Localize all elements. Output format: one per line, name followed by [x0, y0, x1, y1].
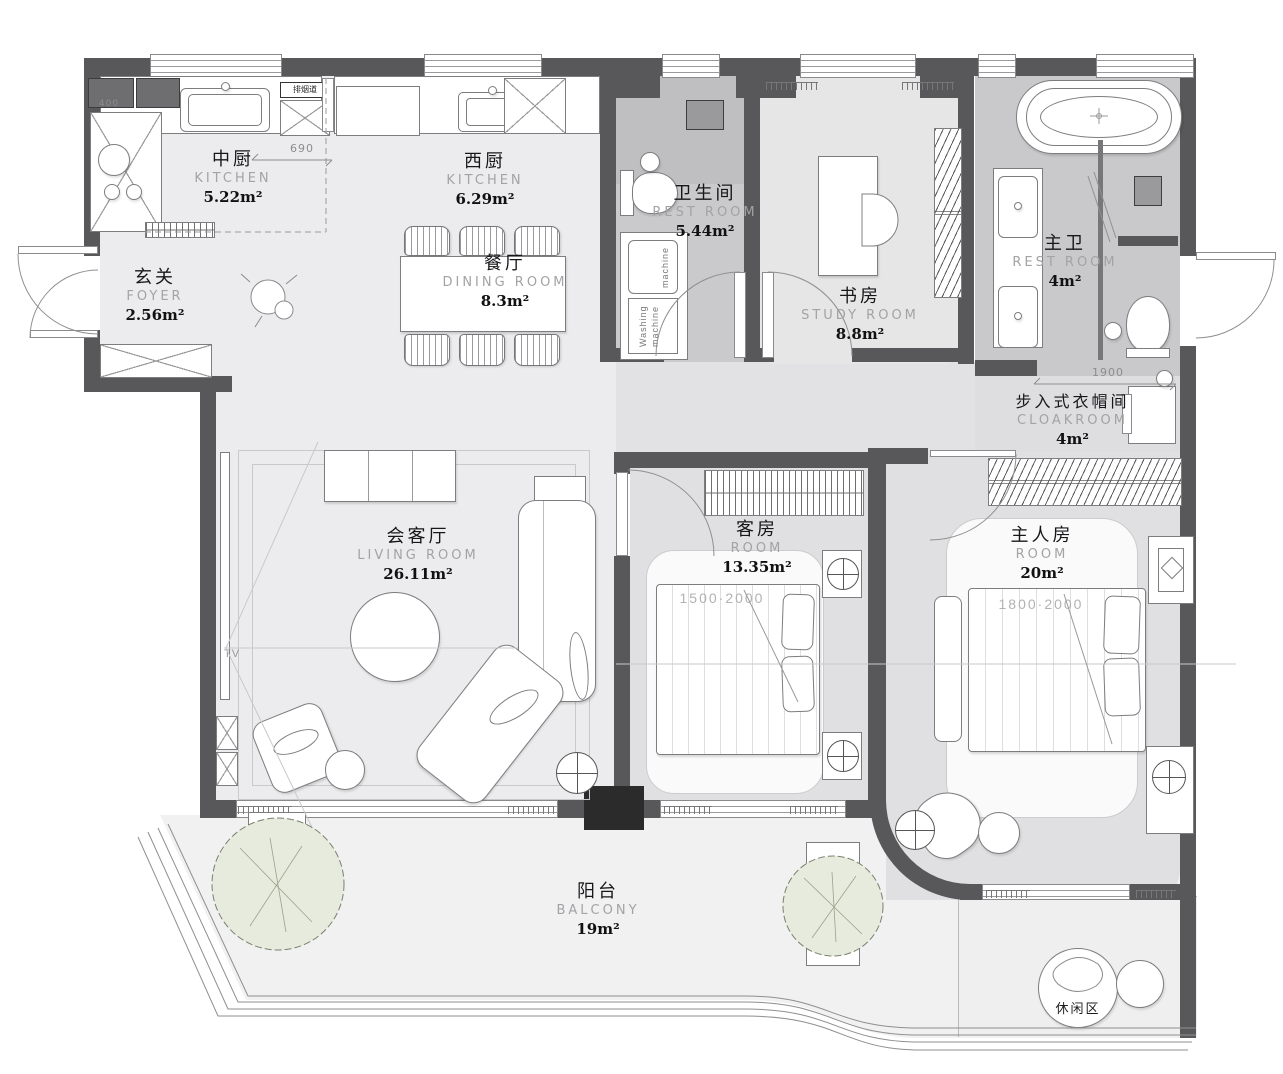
restroom-door-arc	[656, 272, 740, 356]
bed-fold-lines	[744, 590, 1112, 744]
guest-door-arc	[628, 470, 714, 556]
entry-door-arc	[18, 254, 98, 334]
reference-lines	[224, 442, 1236, 840]
leisure-chair-cushion	[1053, 957, 1103, 991]
foyer-stool-sketch	[241, 274, 297, 327]
door-arcs	[18, 172, 1274, 556]
tree-icon	[212, 818, 883, 956]
desk-chair	[862, 194, 898, 246]
entry-door-arc	[30, 270, 98, 338]
study-door-arc	[768, 272, 852, 356]
bath-inner-door	[1088, 172, 1116, 242]
kitchen-dashed-boundary	[145, 78, 326, 232]
tub-faucet	[1090, 108, 1108, 124]
dimension-lines	[252, 154, 1176, 390]
detail-layer	[0, 0, 1283, 1074]
suite-door-arc	[930, 454, 1016, 540]
floor-plan: 排烟道 690 400 machine Washing machine	[0, 0, 1283, 1074]
bath-door-arc	[1196, 260, 1274, 338]
